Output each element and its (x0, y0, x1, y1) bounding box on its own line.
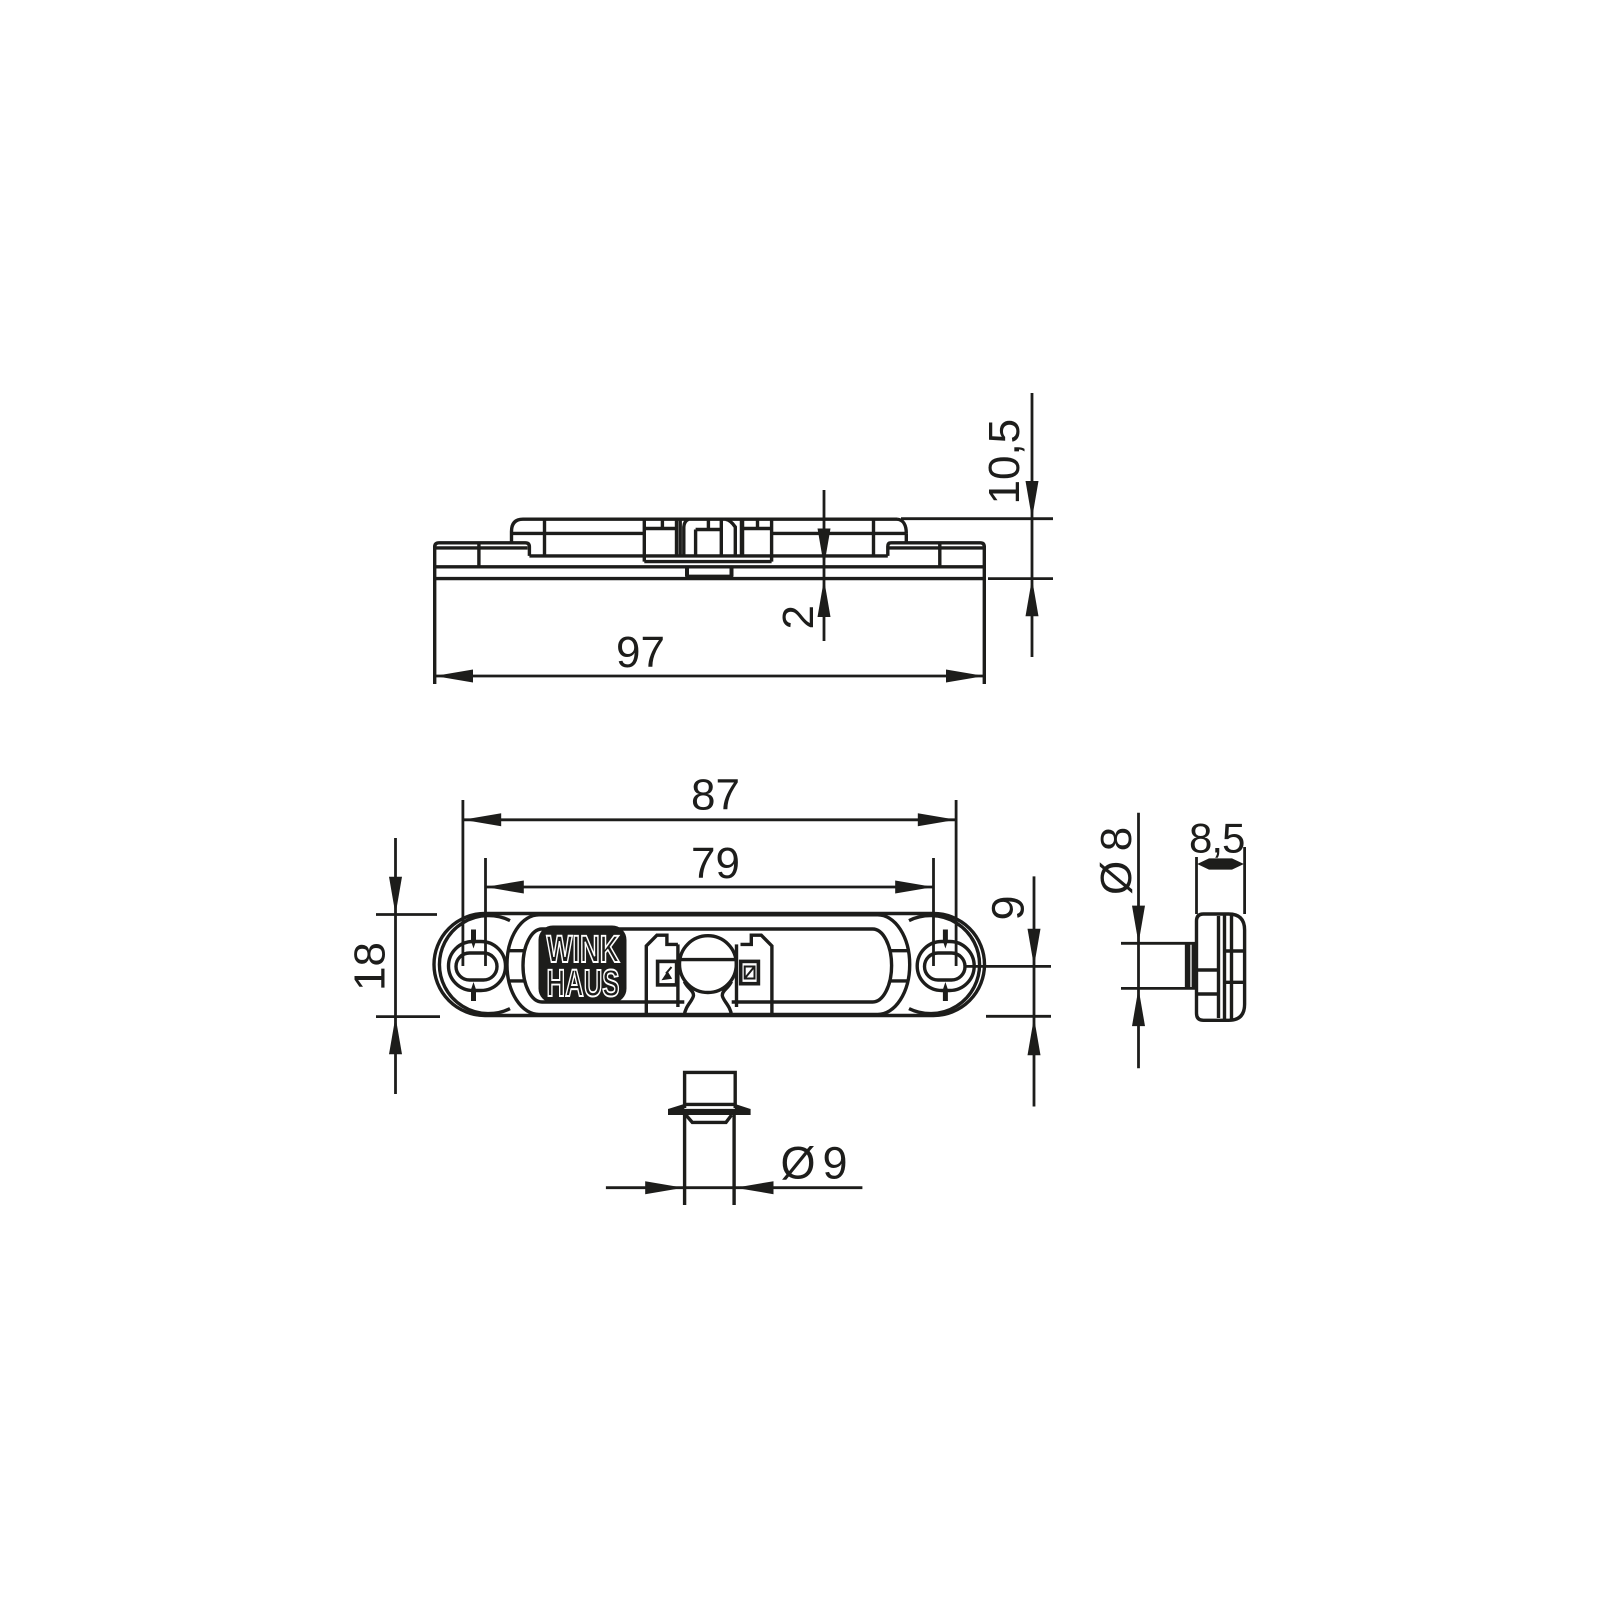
svg-text:Ø9: Ø9 (781, 1138, 855, 1189)
svg-text:HAUS: HAUS (547, 963, 620, 1005)
svg-text:18: 18 (346, 942, 395, 991)
svg-text:9: 9 (983, 895, 1034, 920)
svg-text:10,5: 10,5 (980, 419, 1029, 505)
svg-text:Ø8: Ø8 (1092, 817, 1141, 895)
svg-text:2: 2 (774, 605, 823, 629)
svg-text:8,5: 8,5 (1189, 815, 1244, 862)
svg-text:97: 97 (616, 628, 665, 677)
svg-text:79: 79 (691, 839, 740, 888)
svg-text:87: 87 (691, 771, 740, 820)
